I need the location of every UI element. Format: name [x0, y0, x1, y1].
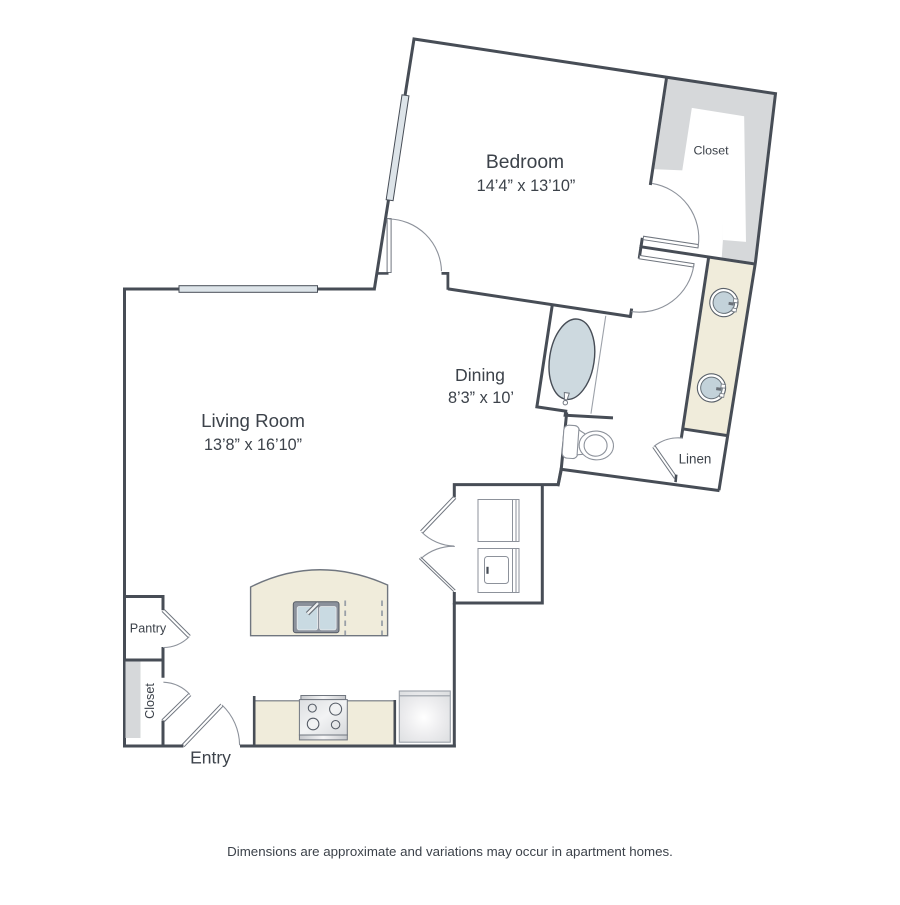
svg-text:14’4” x 13’10”: 14’4” x 13’10” [477, 177, 576, 195]
svg-text:Bedroom: Bedroom [486, 152, 564, 173]
svg-text:13’8” x 16’10”: 13’8” x 16’10” [204, 436, 302, 454]
svg-text:8’3” x 10’: 8’3” x 10’ [448, 389, 514, 407]
svg-text:Closet: Closet [143, 683, 157, 719]
svg-text:Pantry: Pantry [130, 622, 167, 636]
svg-text:Closet: Closet [693, 144, 729, 158]
svg-text:Living Room: Living Room [201, 410, 305, 431]
svg-text:Entry: Entry [190, 748, 231, 768]
svg-text:Dining: Dining [455, 365, 505, 385]
svg-text:Dimensions are approximate and: Dimensions are approximate and variation… [227, 844, 673, 859]
svg-text:Linen: Linen [679, 452, 712, 467]
